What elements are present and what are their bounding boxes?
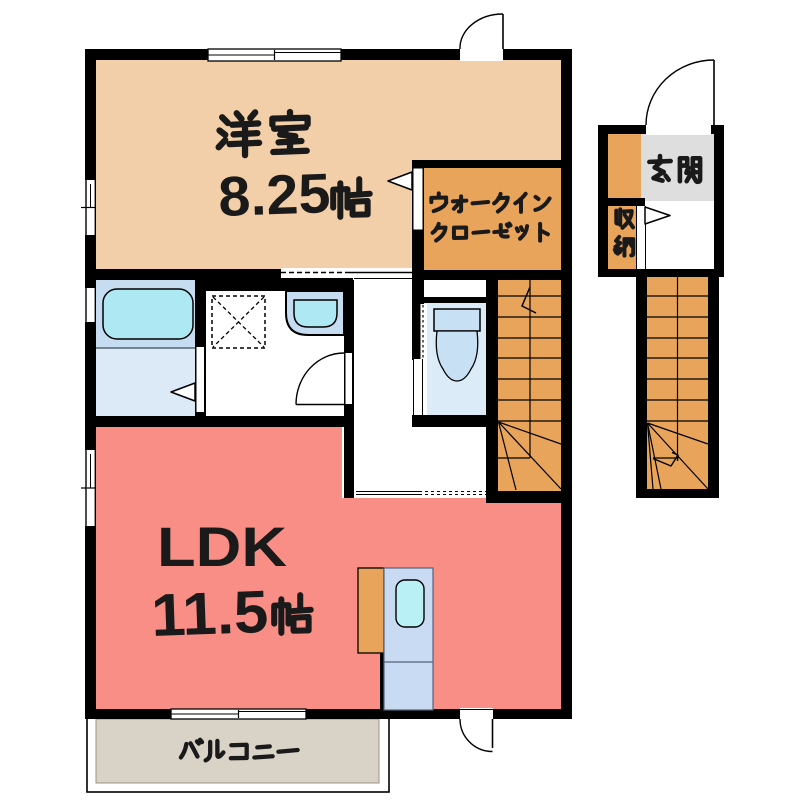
svg-text:8.25: 8.25 bbox=[217, 161, 331, 228]
svg-text:LDK: LDK bbox=[157, 515, 287, 578]
svg-text:11.5: 11.5 bbox=[150, 578, 269, 649]
